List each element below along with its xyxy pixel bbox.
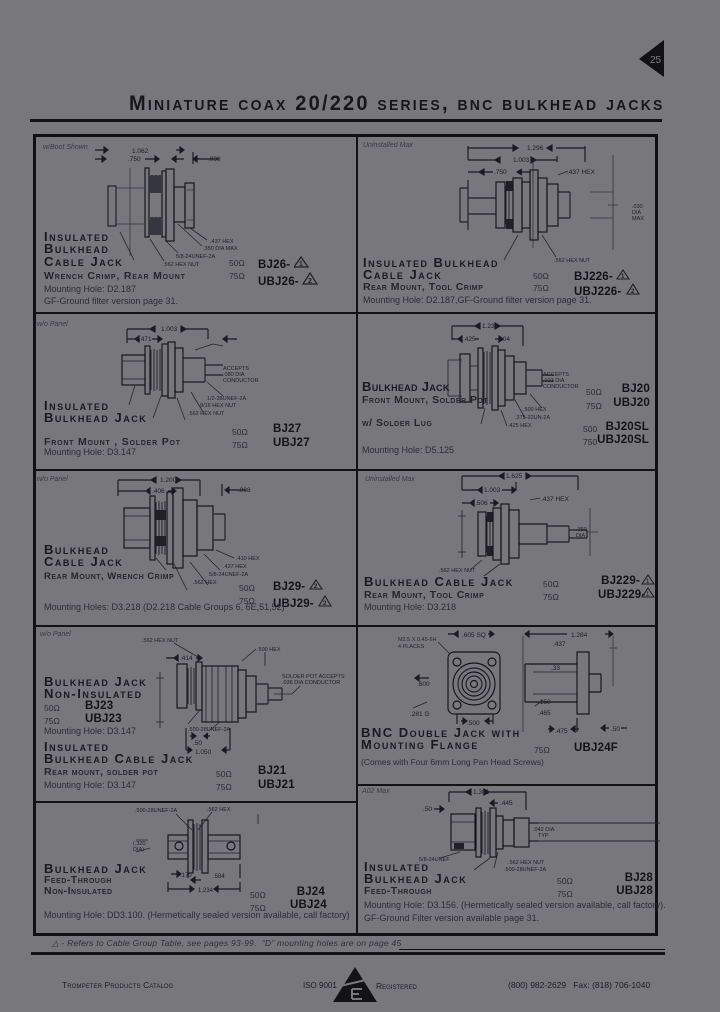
svg-text:.562 HEX NUT: .562 HEX NUT	[188, 411, 225, 417]
svg-text:.098: .098	[208, 156, 221, 163]
svg-text:.50: .50	[193, 740, 202, 747]
svg-text:CONDUCTOR: CONDUCTOR	[223, 378, 259, 384]
svg-text:DIA): DIA)	[133, 847, 144, 853]
svg-text:.445: .445	[500, 800, 513, 807]
svg-text:.562 HEX: .562 HEX	[193, 580, 217, 586]
svg-text:.350 DIA MAX: .350 DIA MAX	[203, 246, 238, 252]
svg-text:.437 HEX: .437 HEX	[541, 496, 569, 503]
svg-text:.414: .414	[180, 655, 193, 662]
svg-text:1.234: 1.234	[198, 888, 214, 894]
svg-text:2: 2	[323, 601, 327, 607]
svg-text:25: 25	[650, 55, 662, 66]
svg-text:5/8-24UNEF-2A: 5/8-24UNEF-2A	[209, 572, 248, 578]
svg-text:.506: .506	[475, 500, 488, 507]
svg-text:.50: .50	[611, 726, 620, 733]
svg-text:5/8-24UNEF-2A: 5/8-24UNEF-2A	[176, 254, 215, 260]
svg-text:1.003: 1.003	[484, 487, 501, 494]
svg-text:.584: .584	[213, 874, 225, 880]
svg-text:1.236: 1.236	[482, 323, 499, 330]
svg-text:.036 DIA CONDUCTOR: .036 DIA CONDUCTOR	[282, 680, 340, 686]
svg-text:1: 1	[621, 274, 625, 280]
svg-text:.406: .406	[152, 488, 165, 495]
svg-text:.562 HEX NUT: .562 HEX NUT	[163, 262, 200, 268]
svg-text:1.050: 1.050	[195, 749, 212, 756]
svg-text:.562 HEX NUT: .562 HEX NUT	[554, 258, 591, 264]
svg-text:.437: .437	[553, 641, 566, 648]
svg-text:2: 2	[308, 278, 312, 285]
svg-text:.170: .170	[180, 873, 192, 879]
svg-text:.04: .04	[501, 336, 510, 343]
svg-text:1.284: 1.284	[571, 632, 588, 639]
svg-text:.437 HEX: .437 HEX	[223, 564, 247, 570]
svg-text:1.003: 1.003	[161, 326, 178, 333]
svg-text:CONDUCTOR: CONDUCTOR	[543, 384, 579, 390]
svg-text:.475: .475	[555, 728, 568, 735]
svg-text:1.625: 1.625	[506, 473, 523, 480]
svg-text:.500 HEX: .500 HEX	[257, 647, 281, 653]
svg-text:1.200: 1.200	[160, 477, 177, 484]
svg-text:.750: .750	[128, 156, 141, 163]
svg-text:.150: .150	[538, 699, 551, 706]
svg-text:1.296: 1.296	[527, 145, 544, 152]
svg-text:1.381: 1.381	[473, 789, 490, 796]
svg-text:2: 2	[631, 289, 635, 295]
svg-text:.50: .50	[423, 806, 432, 813]
svg-text:.465: .465	[538, 710, 551, 717]
svg-text:.600: .600	[417, 681, 430, 688]
svg-text:.562 HEX NUT: .562 HEX NUT	[142, 638, 179, 644]
svg-text:.500-28UNEF-2A: .500-28UNEF-2A	[188, 727, 231, 733]
svg-text:.750: .750	[494, 169, 507, 176]
svg-text:1.062: 1.062	[132, 148, 149, 155]
svg-text:.437 HEX: .437 HEX	[210, 239, 234, 245]
svg-text:.375-32UN-2A: .375-32UN-2A	[515, 415, 550, 421]
svg-text:1: 1	[299, 261, 303, 268]
svg-text:.425: .425	[463, 336, 476, 343]
svg-text:.425 HEX: .425 HEX	[508, 423, 532, 429]
svg-text:TYP: TYP	[538, 833, 549, 839]
svg-text:.500-28UNEF-2A: .500-28UNEF-2A	[135, 808, 178, 814]
svg-text:.500 HEX: .500 HEX	[523, 407, 547, 413]
svg-text:DIA: DIA	[576, 533, 586, 539]
svg-text:.410 HEX: .410 HEX	[236, 556, 260, 562]
svg-text:.605 SQ: .605 SQ	[462, 632, 486, 639]
svg-text:.562 HEX: .562 HEX	[207, 807, 231, 813]
svg-text:.281 G: .281 G	[410, 711, 430, 718]
svg-text:.500-28UNEF-2A: .500-28UNEF-2A	[504, 867, 547, 873]
svg-text:MAX: MAX	[632, 216, 644, 222]
svg-text:.562 HEX NUT: .562 HEX NUT	[508, 860, 545, 866]
svg-text:.33: .33	[551, 665, 560, 672]
svg-text:2: 2	[314, 584, 318, 590]
svg-text:.471: .471	[139, 336, 152, 343]
svg-text:.437 HEX: .437 HEX	[567, 169, 595, 176]
svg-text:.098: .098	[238, 487, 251, 494]
svg-text:1/2-28UNEF-2A: 1/2-28UNEF-2A	[207, 396, 246, 402]
svg-text:9/16 HEX NUT: 9/16 HEX NUT	[200, 403, 237, 409]
svg-text:1.003: 1.003	[513, 157, 530, 164]
